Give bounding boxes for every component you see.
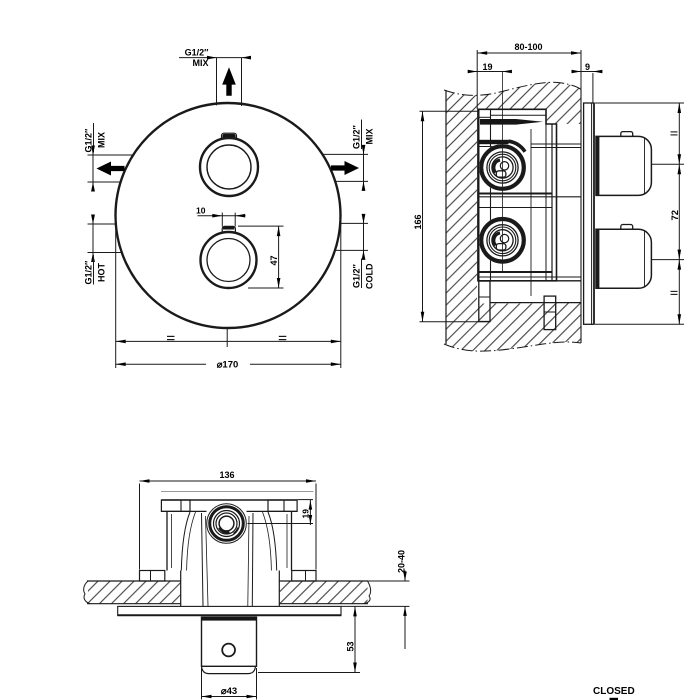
svg-text:136: 136	[219, 470, 234, 480]
svg-text:10: 10	[196, 206, 206, 216]
svg-text:20-40: 20-40	[396, 550, 406, 573]
svg-text:MIX: MIX	[97, 132, 107, 148]
svg-text:19: 19	[482, 62, 492, 72]
svg-text:G1/2″: G1/2″	[185, 48, 210, 58]
svg-text:G1/2″: G1/2″	[84, 260, 94, 285]
svg-text:MIX: MIX	[365, 128, 375, 144]
svg-text:HOT: HOT	[97, 263, 107, 283]
svg-text:G1/2″: G1/2″	[352, 124, 362, 149]
svg-text:166: 166	[413, 214, 423, 229]
svg-text:72: 72	[670, 210, 681, 221]
svg-text:CLOSED: CLOSED	[593, 686, 635, 697]
svg-text:⌀170: ⌀170	[217, 360, 239, 371]
svg-text:⌀43: ⌀43	[221, 686, 237, 697]
svg-text:47: 47	[269, 255, 279, 265]
svg-text:MIX: MIX	[192, 58, 208, 68]
svg-text:G1/2″: G1/2″	[352, 263, 362, 288]
svg-text:80-100: 80-100	[514, 42, 542, 52]
svg-text:COLD: COLD	[365, 263, 375, 289]
svg-text:9: 9	[585, 62, 590, 72]
svg-text:53: 53	[345, 641, 355, 651]
svg-text:19: 19	[301, 509, 311, 519]
